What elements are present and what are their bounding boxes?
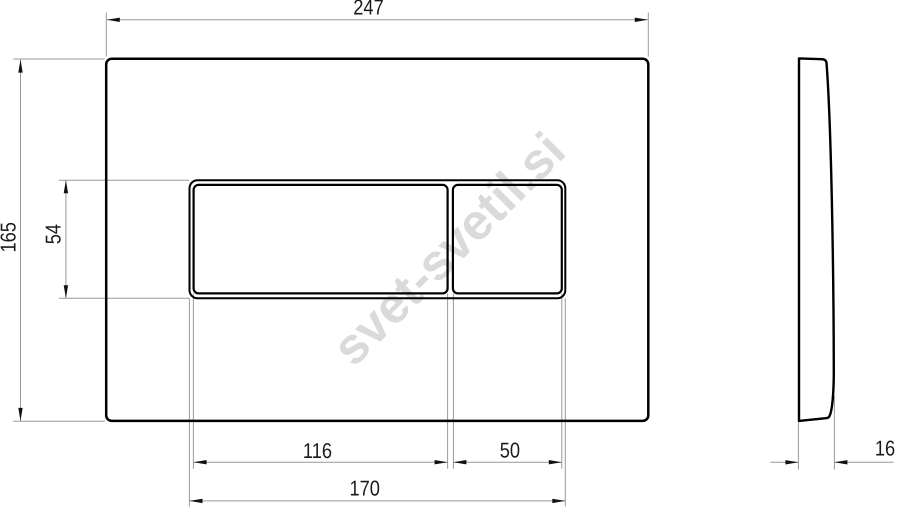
svg-text:116: 116: [303, 439, 332, 463]
svg-text:170: 170: [349, 477, 380, 501]
svg-text:54: 54: [41, 224, 65, 244]
svg-text:247: 247: [353, 0, 383, 20]
svg-text:50: 50: [500, 439, 520, 463]
svg-text:16: 16: [875, 436, 895, 460]
svg-text:165: 165: [0, 222, 21, 253]
